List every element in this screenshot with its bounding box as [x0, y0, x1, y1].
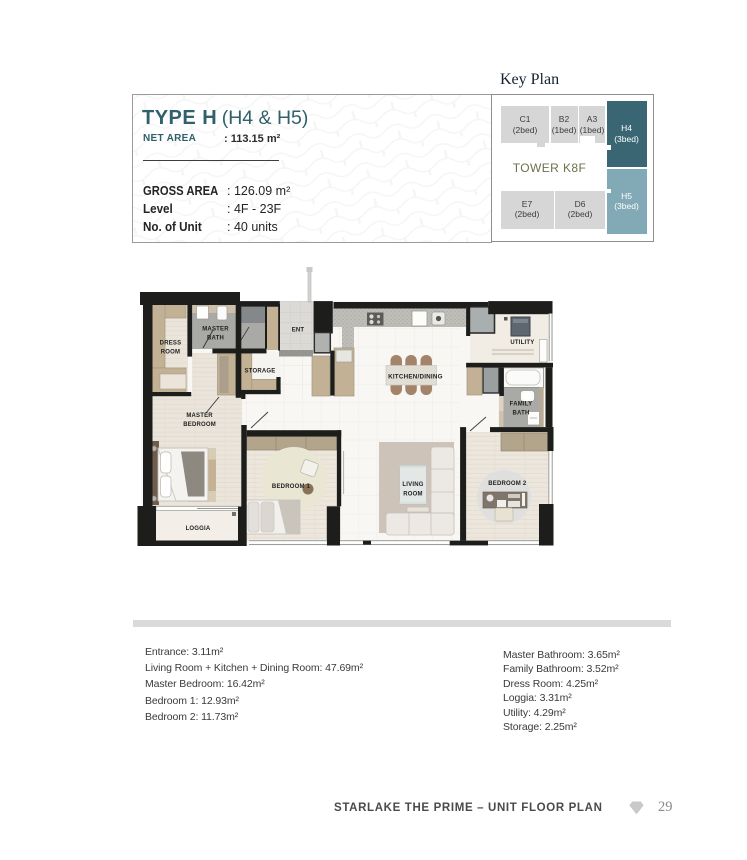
svg-text:BEDROOM 1: BEDROOM 1	[272, 484, 311, 490]
svg-text:STORAGE: STORAGE	[245, 369, 276, 375]
svg-text:ENT: ENT	[292, 328, 305, 334]
svg-text:FAMILY: FAMILY	[510, 402, 533, 408]
svg-text:BATH: BATH	[512, 411, 529, 417]
svg-text:BEDROOM 2: BEDROOM 2	[488, 481, 527, 487]
svg-text:DRESS: DRESS	[160, 341, 182, 347]
svg-text:KITCHEN/DINING: KITCHEN/DINING	[388, 374, 443, 381]
svg-text:UTILITY: UTILITY	[510, 340, 534, 346]
svg-text:MASTER: MASTER	[186, 413, 213, 419]
svg-text:ROOM: ROOM	[403, 492, 422, 498]
svg-text:LIVING: LIVING	[402, 482, 423, 488]
svg-text:BEDROOM: BEDROOM	[183, 422, 216, 428]
svg-text:MASTER: MASTER	[202, 327, 229, 333]
svg-text:BATH: BATH	[207, 336, 224, 342]
svg-text:ROOM: ROOM	[161, 350, 180, 356]
svg-text:LOGGIA: LOGGIA	[186, 526, 211, 532]
